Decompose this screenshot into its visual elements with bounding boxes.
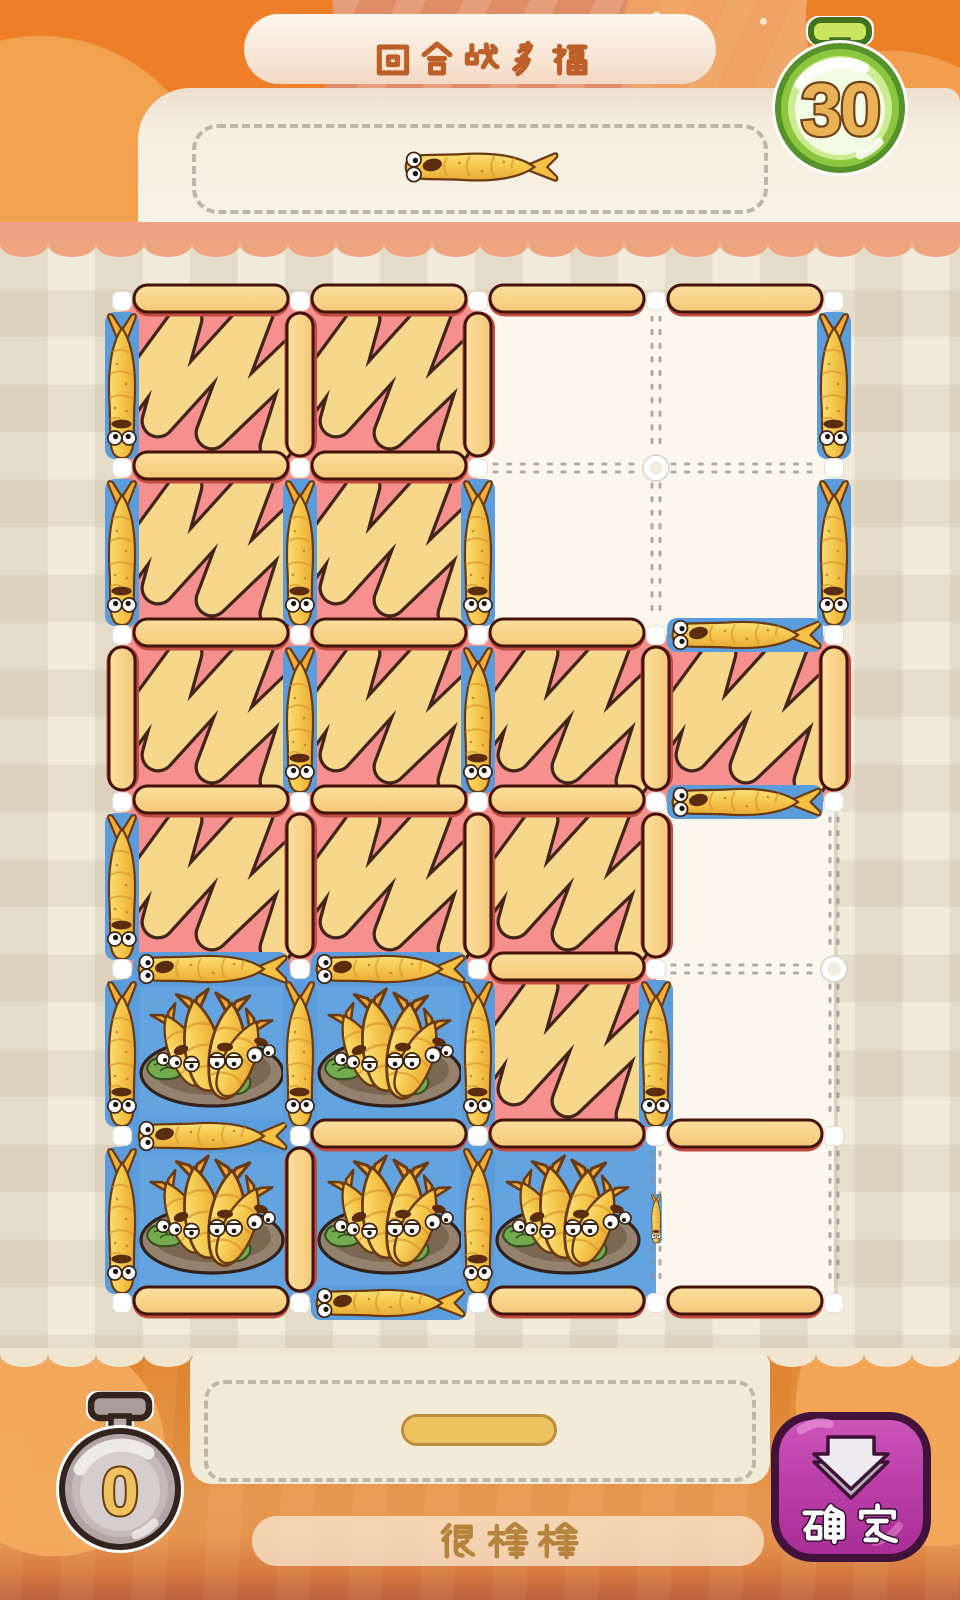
svg-text:30: 30: [801, 68, 879, 151]
svg-text:0: 0: [101, 1454, 139, 1530]
